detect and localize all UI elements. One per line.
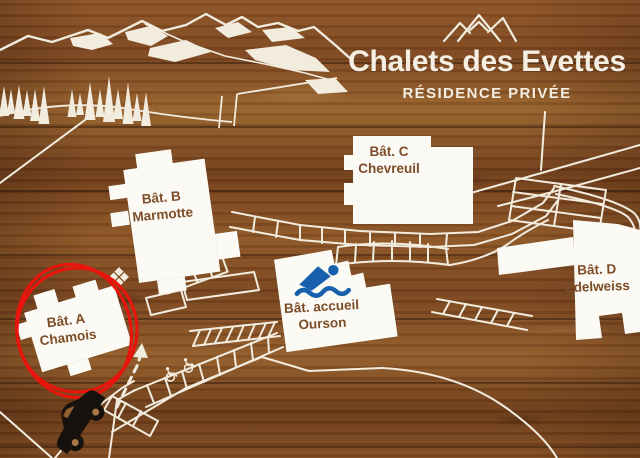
- building-c-name: Bât. C: [329, 143, 449, 160]
- mountain-art: [0, 14, 352, 128]
- wooden-resort-map-board: Chalets des Evettes RÉSIDENCE PRIVÉE Bât…: [0, 0, 640, 458]
- sign-subtitle: RÉSIDENCE PRIVÉE: [337, 85, 637, 102]
- building-d-subname: Edelweiss: [537, 276, 640, 297]
- sign-title: Chalets des Evettes: [337, 45, 637, 79]
- building-c-subname: Chevreuil: [329, 160, 449, 177]
- mountain-peaks-icon: [444, 15, 516, 41]
- building-d-label: Bât. D Edelweiss: [536, 259, 640, 297]
- parking-row-below-d: [432, 299, 532, 330]
- building-c-label: Bât. C Chevreuil: [329, 143, 449, 177]
- building-accueil-label: Bât. accueil Ourson: [261, 295, 383, 335]
- pine-trees: [0, 76, 151, 126]
